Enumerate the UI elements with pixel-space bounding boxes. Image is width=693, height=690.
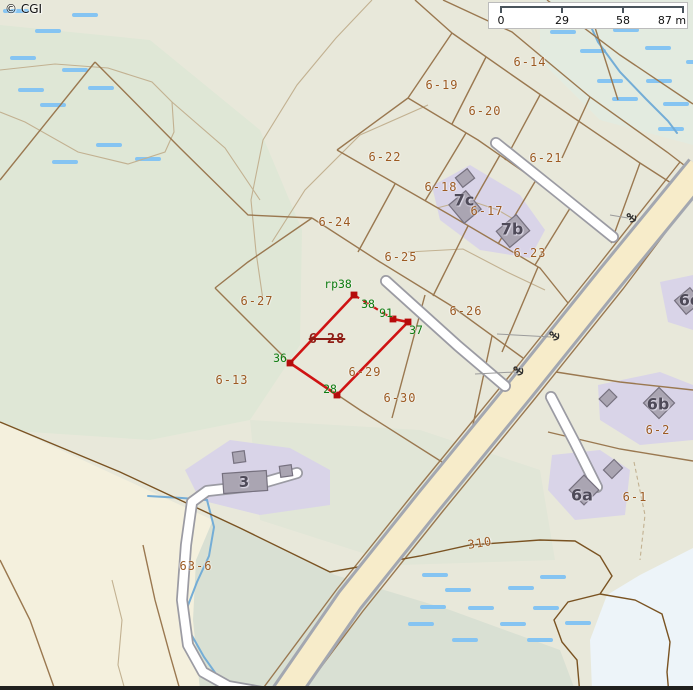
cadastral-boundary-line [502, 267, 538, 352]
wetland-mark [663, 102, 689, 106]
wetland-mark [420, 605, 446, 609]
map-view[interactable]: 6-146-196-206-226-216-186-176-246-236-25… [0, 0, 693, 690]
terrain-area [590, 548, 693, 690]
wetland-mark [550, 30, 576, 34]
wetland-mark [597, 79, 623, 83]
wetland-mark [88, 86, 114, 90]
wetland-mark [612, 97, 638, 101]
wetland-mark [540, 575, 566, 579]
terrain-area [0, 25, 302, 440]
cadastral-boundary-line [408, 33, 452, 98]
highlighted-parcel-outline-dashed [354, 295, 393, 319]
cadastral-boundary-line [562, 97, 590, 158]
cadastral-boundary-line [452, 57, 486, 124]
scale-bar: 0295887 m [488, 2, 688, 29]
terrain-area [432, 165, 545, 258]
boundary-vertex-marker [405, 319, 412, 326]
wetland-mark [72, 13, 98, 17]
boundary-vertex-marker [351, 292, 358, 299]
wetland-mark [565, 621, 591, 625]
building-footprint [222, 470, 267, 493]
wetland-mark [422, 573, 448, 577]
cadastral-boundary-line [415, 0, 452, 33]
boundary-vertex-marker [287, 360, 294, 367]
building-footprint [232, 451, 245, 464]
scale-tick-label: 0 [498, 14, 505, 27]
contour-line-dashed [634, 462, 645, 560]
wetland-mark [10, 56, 36, 60]
boundary-vertex-marker [334, 392, 341, 399]
map-canvas[interactable] [0, 0, 693, 690]
wetland-mark [508, 586, 534, 590]
wetland-mark [96, 143, 122, 147]
wetland-mark [445, 588, 471, 592]
scale-tick-label: 29 [555, 14, 569, 27]
copyright-notice: © CGI [2, 1, 45, 17]
building-footprint [279, 465, 292, 478]
wetland-mark [35, 29, 61, 33]
wetland-mark [62, 68, 88, 72]
utility-line [610, 215, 628, 218]
wetland-mark [408, 622, 434, 626]
wetland-mark [500, 622, 526, 626]
cadastral-boundary-line [358, 184, 395, 252]
highlighted-parcel-outline [290, 295, 408, 395]
cadastral-boundary-line [337, 98, 408, 150]
wetland-mark [686, 60, 693, 64]
wetland-mark [452, 638, 478, 642]
boundary-vertex-marker [390, 316, 397, 323]
wetland-mark [18, 88, 44, 92]
local-road [386, 281, 505, 386]
terrain-area [598, 372, 693, 445]
scale-tick-label: 58 [616, 14, 630, 27]
wetland-mark [468, 606, 494, 610]
wetland-mark [658, 127, 684, 131]
wetland-mark [527, 638, 553, 642]
scale-tick-label: 87 m [658, 14, 686, 27]
cadastral-boundary-line [433, 226, 468, 296]
wetland-mark [52, 160, 78, 164]
wetland-mark [645, 46, 671, 50]
wetland-mark [533, 606, 559, 610]
